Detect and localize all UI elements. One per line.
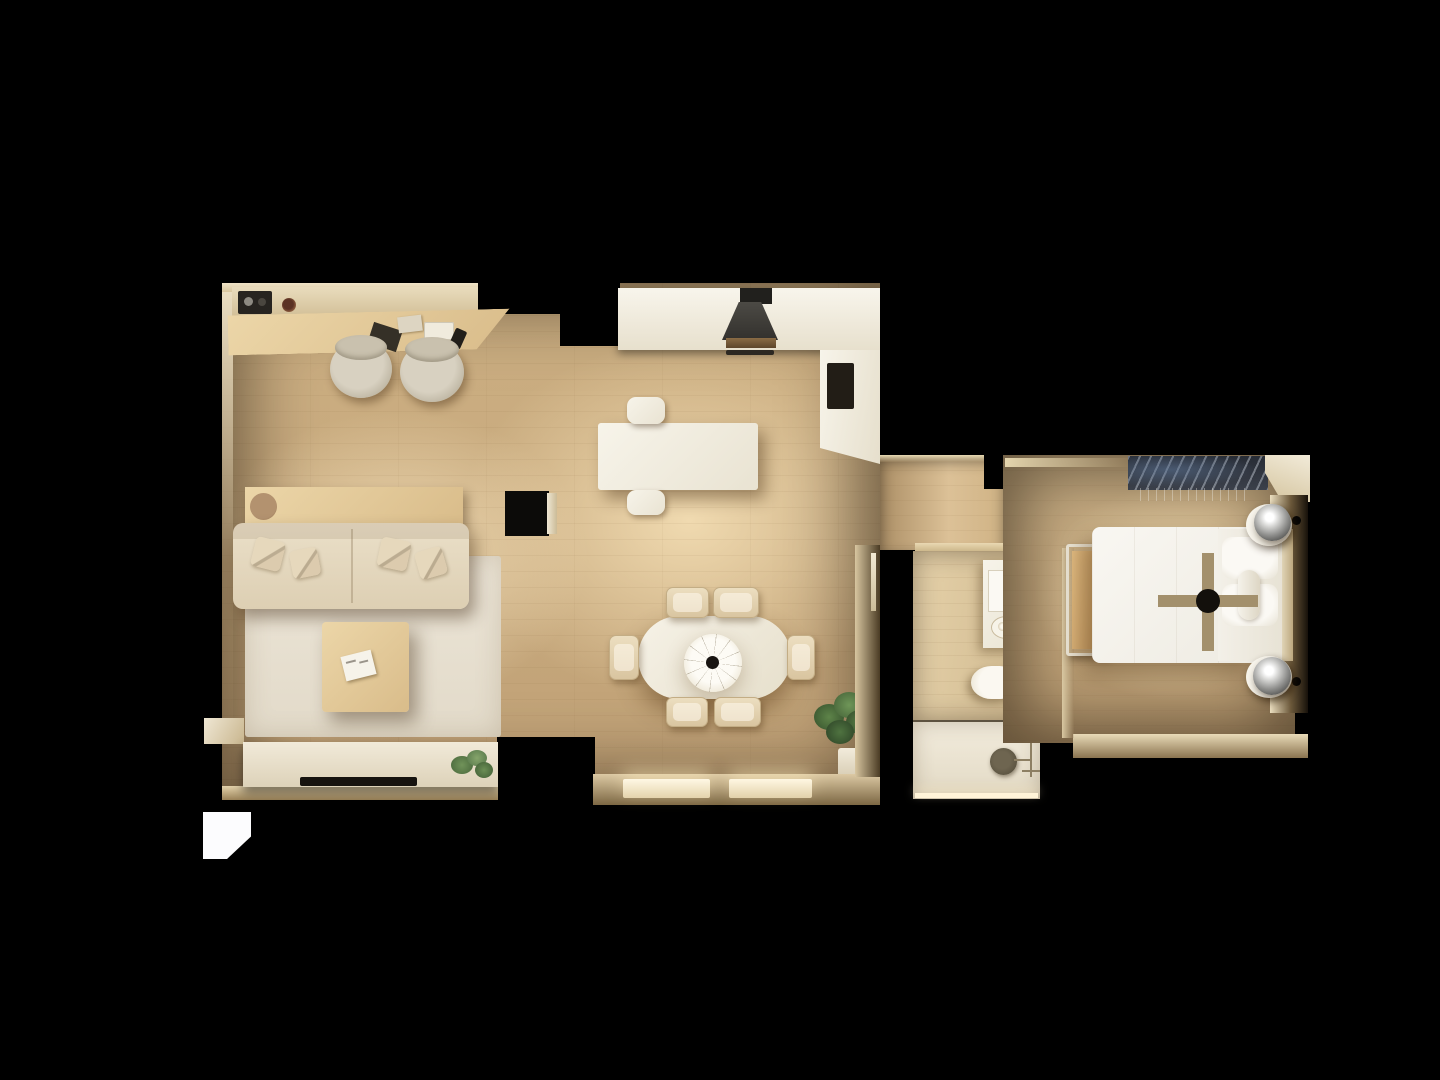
left-wall-light xyxy=(222,292,233,744)
sofa-pillow-2 xyxy=(289,547,322,580)
pendant-finial xyxy=(706,656,719,669)
right-wall-door xyxy=(871,553,876,611)
sofa-pillow-1 xyxy=(250,536,286,572)
shower-drain xyxy=(990,748,1017,775)
magazine-text-line-2 xyxy=(359,660,368,664)
sphere-lamp-bottom xyxy=(1253,657,1291,695)
wall-spot-bottom xyxy=(1292,677,1301,686)
bed-runner-disc xyxy=(1196,589,1220,613)
speaker-knob-right xyxy=(258,298,266,306)
sideboard-plant xyxy=(447,748,497,786)
wall-spot-top xyxy=(1292,516,1301,525)
dining-chair-right xyxy=(787,635,815,680)
tv-flat xyxy=(300,777,417,786)
skylight-patch xyxy=(203,812,251,859)
bedroom-top-wall-light xyxy=(1005,458,1130,467)
floorplan-render xyxy=(0,0,1440,1080)
magazine-text-line-1 xyxy=(346,660,356,664)
sofa-pillow-3 xyxy=(376,536,412,572)
shower-mixer-h xyxy=(1022,770,1040,772)
black-cabinet xyxy=(505,491,549,536)
sofa-back-shade xyxy=(233,523,469,539)
clothes-hangers xyxy=(1140,488,1252,501)
island-table xyxy=(598,423,758,490)
coffee-cup xyxy=(282,298,296,312)
dining-chair-top-right xyxy=(713,587,759,618)
office-chair-right xyxy=(400,342,464,402)
headboard xyxy=(1282,529,1293,661)
living-bottom-wall-light xyxy=(222,786,498,800)
office-chair-left xyxy=(330,340,392,398)
left-wall-corner xyxy=(204,718,244,744)
console-table xyxy=(245,487,463,527)
desk-papers xyxy=(397,315,423,334)
cooktop-front xyxy=(726,338,776,348)
dining-chair-top-left xyxy=(666,587,709,618)
dining-chair-bottom-right xyxy=(714,697,761,727)
leaf-cluster xyxy=(826,720,854,744)
bottom-center-wall xyxy=(497,737,595,805)
sofa-pillow-4 xyxy=(414,546,449,581)
black-cabinet-side xyxy=(547,493,557,534)
leaf-cluster xyxy=(475,762,493,778)
dining-chair-bottom-left xyxy=(666,697,708,727)
dining-chair-left xyxy=(609,635,639,680)
window-sill-left xyxy=(623,779,710,798)
stool-bottom xyxy=(627,490,665,515)
bedroom-bottom-wall xyxy=(1073,734,1308,758)
stool-top xyxy=(627,397,665,424)
round-tray xyxy=(250,493,277,520)
speaker-knob-left xyxy=(244,297,253,306)
speaker xyxy=(238,291,272,314)
oven-handle xyxy=(726,350,774,355)
hallway-door-stub xyxy=(984,455,1004,489)
bathroom-bottom-glow xyxy=(915,793,1038,798)
sofa xyxy=(233,523,469,609)
clothes-rail xyxy=(1128,456,1268,490)
appliance-inset xyxy=(827,363,854,409)
range-hood-chimney xyxy=(740,288,772,304)
dining-right-wall xyxy=(855,545,880,777)
sofa-seat-split xyxy=(351,529,353,603)
sphere-lamp-top xyxy=(1254,504,1291,541)
window-sill-right xyxy=(729,779,812,798)
entry-notch-wall-deep xyxy=(560,283,620,346)
